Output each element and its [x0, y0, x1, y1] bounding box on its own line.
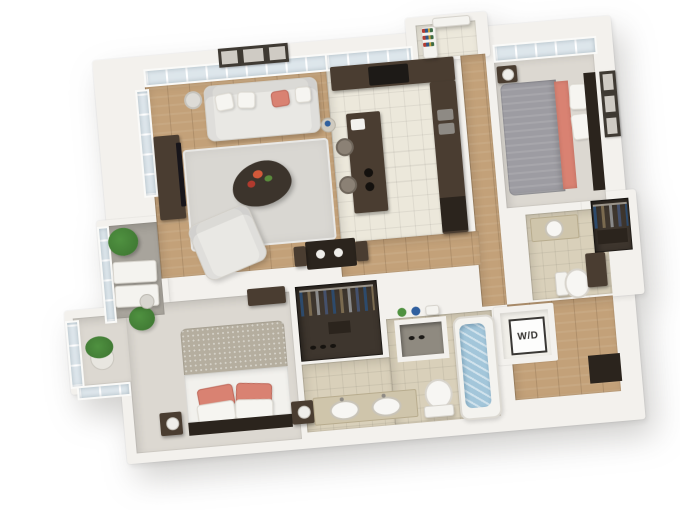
washer-dryer-label: W/D [517, 330, 539, 343]
sofa-pillow-1 [214, 92, 235, 112]
sofa-pillow-coral [270, 89, 290, 108]
linen-niche [394, 316, 449, 362]
place-setting-1 [316, 249, 326, 259]
bedroom2-frame-1 [599, 70, 617, 93]
ledge-towel-stack [425, 305, 440, 316]
sofa [203, 76, 321, 142]
bedroom2-frame-2 [601, 92, 619, 115]
dining-table [305, 238, 357, 270]
master-dresser [247, 286, 286, 306]
apartment-floorplan: W/D [21, 0, 658, 505]
sofa-pillow-3 [294, 86, 311, 103]
wall-art-frame-3 [266, 43, 290, 64]
refrigerator [440, 196, 469, 232]
flower-red [247, 180, 257, 189]
bathroom2-cabinet [585, 252, 608, 288]
floorplan-render: W/D [0, 0, 680, 510]
bedroom2-closet-clothes [593, 202, 629, 229]
flower-green [264, 174, 273, 182]
shoe-2 [418, 335, 424, 340]
washer-dryer-unit: W/D [508, 316, 547, 355]
kitchen-sink-right [438, 123, 455, 135]
kitchen-sink-left [437, 109, 454, 121]
bedroom2-closet-shelf [597, 228, 628, 245]
sofa-pillow-2 [237, 92, 255, 109]
master-closet-bench [328, 320, 351, 334]
dining-chair-left [293, 246, 307, 267]
shoe-1 [409, 336, 415, 341]
wall-art-frame-2 [240, 45, 268, 66]
dining-chair-right [355, 241, 369, 262]
island-sink [350, 118, 365, 130]
stove [368, 63, 410, 85]
place-setting-2 [334, 248, 344, 258]
flower-orange [252, 169, 264, 180]
hall-bench [588, 353, 622, 384]
lounge-chair-1 [112, 260, 157, 284]
wall-art-frame-1 [218, 47, 242, 68]
bedroom2-frame-3 [603, 114, 621, 137]
